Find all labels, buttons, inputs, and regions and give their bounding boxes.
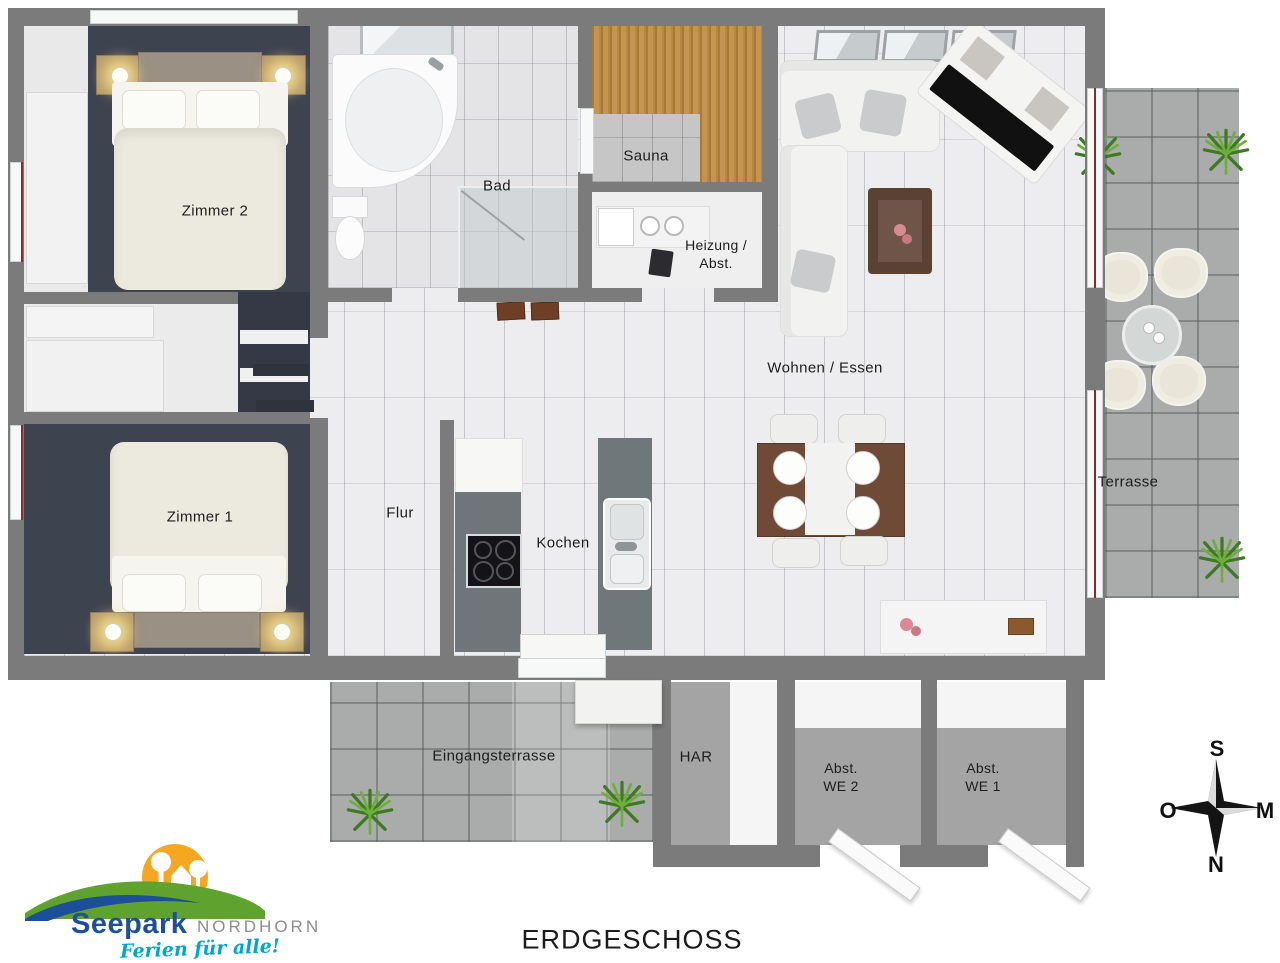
room-label-sauna: Sauna (623, 148, 668, 165)
compass-top: S (1210, 736, 1225, 762)
island-sink (603, 498, 651, 590)
pillow (122, 574, 186, 612)
sauna-bench-right (700, 26, 762, 182)
compass: S M N O (1150, 735, 1280, 875)
burner (496, 562, 514, 580)
closet-shelf (240, 330, 308, 344)
table-bottles (1153, 332, 1165, 344)
dining-chair (840, 536, 888, 566)
burner (474, 541, 492, 559)
wall-living-west (762, 8, 778, 302)
basin (640, 216, 660, 236)
terrace-table (1122, 305, 1182, 365)
doormat (531, 302, 560, 321)
room-label-zimmer1: Zimmer 1 (167, 509, 234, 526)
entrance-threshold (518, 658, 606, 678)
book (1008, 618, 1034, 635)
plant-icon (344, 786, 396, 838)
basin (664, 216, 684, 236)
bedside-lamp (103, 622, 123, 642)
table-bottles (1143, 322, 1155, 334)
wall-kitchen (440, 420, 454, 656)
open-door (256, 400, 314, 412)
pillow (198, 574, 262, 612)
toilet-tank (332, 196, 368, 218)
doormat (497, 301, 526, 320)
plate (773, 496, 807, 530)
plate (846, 496, 880, 530)
room-label-line: Abst. (965, 759, 1000, 777)
entrance-door (520, 634, 606, 660)
tv-speaker (960, 36, 1005, 81)
flower-decor (902, 234, 912, 244)
logo-place: NORDHORN (197, 917, 321, 937)
logo: Seepark NORDHORN Ferien für alle! (25, 835, 325, 961)
room-label-abst-we1: Abst. WE 1 (965, 759, 1000, 795)
door-frame-line (1094, 390, 1096, 598)
skylight (881, 30, 948, 62)
utility-sink (598, 208, 634, 246)
window-frame-line (21, 425, 23, 520)
sofa-left-arm (780, 145, 848, 337)
zimmer1-wardrobe (26, 306, 154, 338)
room-label-bad: Bad (483, 178, 511, 195)
open-door (253, 364, 309, 376)
zimmer1-headboard (134, 612, 260, 648)
bedside-lamp (272, 622, 292, 642)
wall-sauna-heizung (585, 182, 762, 192)
plant-icon (596, 778, 648, 830)
we1-back-wall (937, 682, 1066, 728)
coffee-table (868, 188, 932, 274)
room-label-har: HAR (680, 749, 713, 766)
wall-we1-right (1066, 680, 1084, 867)
door-frame-line (1094, 88, 1096, 288)
wall-annex-bottom (900, 845, 988, 867)
wall-annex-bottom (653, 845, 820, 867)
sink-faucet (615, 542, 637, 551)
zimmer1-wardrobe (26, 340, 164, 412)
flower-decor (911, 626, 921, 636)
terrace-chair (1154, 248, 1208, 298)
plant-icon (1196, 534, 1248, 586)
room-label-heizung: Heizung / Abst. (685, 236, 747, 272)
pillow (196, 90, 260, 130)
tv-speaker (1024, 87, 1069, 132)
sofa-pillow (789, 248, 836, 293)
wall-bedrooms (310, 418, 328, 680)
dining-chair (770, 414, 818, 444)
dining-chair (772, 538, 820, 568)
room-label-line: Heizung / (685, 236, 747, 254)
window-frame-line (21, 162, 23, 262)
plate (846, 451, 880, 485)
wall-bad-south (458, 288, 642, 302)
room-label-eingangsterrasse: Eingangsterrasse (432, 748, 555, 765)
wall-closet-zimmer1 (8, 412, 310, 424)
room-label-line: WE 2 (823, 777, 858, 795)
we2-back-wall (795, 682, 921, 728)
logo-name: Seepark (71, 908, 187, 941)
sink-drainer (610, 554, 644, 584)
entrance-canopy (575, 680, 662, 724)
room-label-line: Abst. (823, 759, 858, 777)
toilet-bowl (335, 216, 365, 260)
cooktop (466, 534, 522, 588)
compass-right: M (1256, 798, 1274, 824)
room-label-line: Abst. (685, 254, 747, 272)
page-title: ERDGESCHOSS (521, 925, 742, 956)
plant-icon (1200, 126, 1252, 178)
wall-har-we2 (777, 680, 795, 867)
room-label-zimmer2: Zimmer 2 (182, 203, 249, 220)
room-label-terrasse: Terrasse (1098, 474, 1159, 491)
dining-chair (838, 414, 886, 444)
logo-tagline: Ferien für alle! (120, 935, 281, 963)
zimmer2-wardrobe (26, 92, 88, 284)
zimmer2-window (90, 10, 298, 24)
sofa-pillow (859, 89, 908, 138)
wall-we2-we1 (921, 680, 937, 867)
compass-star-icon (1166, 753, 1266, 863)
wall-outer-left (8, 8, 24, 680)
wall-zimmer2-closet (8, 292, 238, 304)
room-label-flur: Flur (386, 505, 413, 522)
bathtub-basin (345, 68, 443, 172)
wall-bad-sauna (578, 8, 592, 108)
room-label-kochen: Kochen (536, 535, 589, 552)
wall-bad-south (328, 288, 392, 302)
closet-niche (238, 292, 310, 412)
kitchen-upper-cabinet (455, 438, 523, 494)
room-label-line: WE 1 (965, 777, 1000, 795)
har-door-face (730, 682, 777, 845)
wall-bedrooms (310, 8, 328, 338)
compass-left: O (1159, 798, 1176, 824)
floor-plan: Zimmer 2 Bad Sauna Heizung / Abst. Wohne… (0, 0, 1280, 963)
room-label-wohnen-essen: Wohnen / Essen (767, 360, 882, 377)
washer (648, 249, 673, 278)
pillow (122, 90, 186, 130)
burner (495, 540, 516, 561)
room-label-abst-we2: Abst. WE 2 (823, 759, 858, 795)
skylight (813, 30, 880, 62)
compass-bottom: N (1208, 852, 1224, 878)
burner (473, 561, 494, 582)
sink-basin (610, 504, 644, 540)
wall-bad-south (714, 288, 762, 302)
sauna-door (580, 108, 594, 174)
plate (773, 451, 807, 485)
